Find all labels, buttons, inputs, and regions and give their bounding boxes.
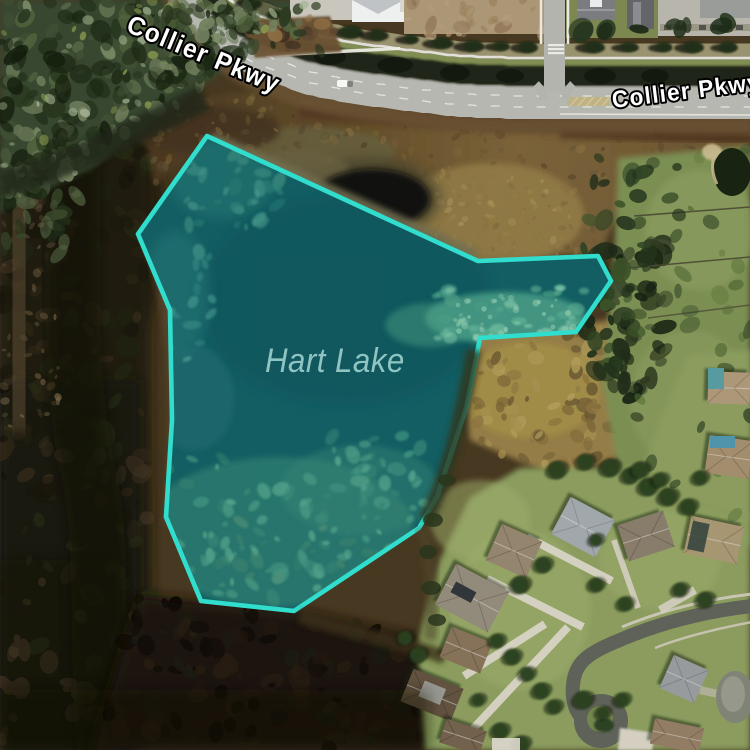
- svg-text:Hart Lake: Hart Lake: [265, 341, 405, 380]
